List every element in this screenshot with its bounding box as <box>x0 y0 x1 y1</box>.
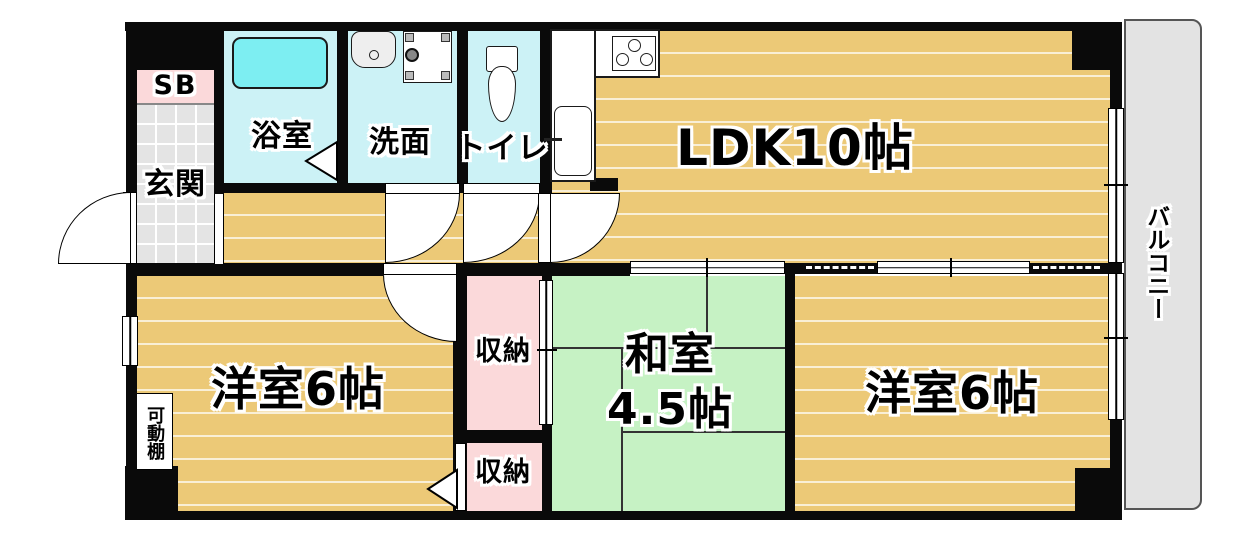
pan-corner <box>441 33 450 42</box>
balcony-label: バルコニー <box>1142 190 1168 335</box>
storage-bottom-label: 収納 <box>443 458 563 488</box>
japanese-room-label-line2: 4.5帖 <box>570 385 770 434</box>
ldk-label: LDK10帖 <box>645 120 945 176</box>
floor-plan: LDK10帖 洋室6帖 洋室6帖 和室 4.5帖 浴室 洗面 トイレ 玄関 SB… <box>0 0 1257 541</box>
storage-top-label: 収納 <box>443 337 563 367</box>
bathroom-label: 浴室 <box>222 120 342 154</box>
kitchen-counter-patch <box>553 32 593 75</box>
bathtub <box>232 37 328 89</box>
pan-drain-icon <box>405 48 419 62</box>
stove-burner <box>616 53 629 66</box>
pan-corner <box>405 33 414 42</box>
entrance-label: 玄関 <box>115 168 235 202</box>
shoe-box-label: SB <box>137 71 214 101</box>
toilet-label: トイレ <box>432 132 572 166</box>
western-room-right-label: 洋室6帖 <box>802 368 1102 420</box>
washroom-sink-drain <box>369 50 379 60</box>
stove-burner <box>628 39 641 52</box>
western-room-left-label: 洋室6帖 <box>148 364 448 416</box>
stove-burner <box>640 53 653 66</box>
pan-corner <box>405 71 414 80</box>
japanese-room-label-line1: 和室 <box>570 330 770 379</box>
pan-corner <box>441 71 450 80</box>
movable-shelf-label: 可動棚 <box>144 398 164 468</box>
